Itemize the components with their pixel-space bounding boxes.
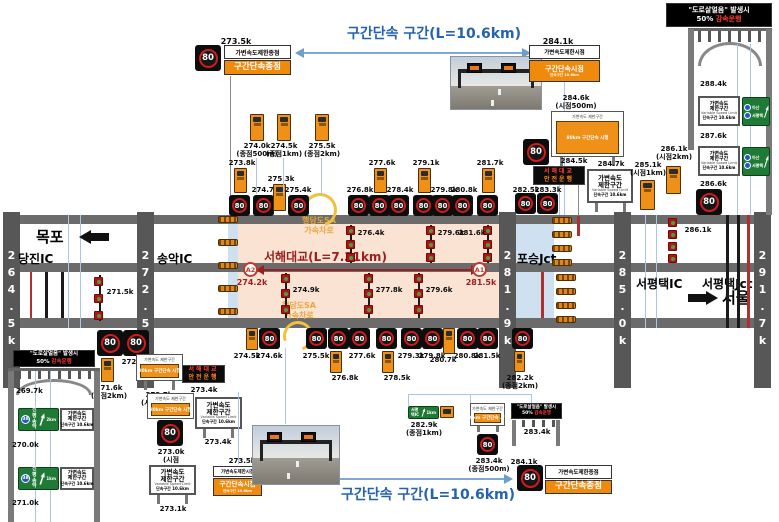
ice-percent: 50% [36,359,49,365]
leader-line [645,215,646,328]
vsl-combo-body: 80km 구간단속 시행 [474,413,501,423]
km-label: 273.4k [196,438,240,446]
bridge-span-line [259,269,474,271]
section-line-top [298,52,524,54]
gantry-icon [552,245,572,252]
section-start-plate: 구간단속시점 단속구간 10.6km [529,60,600,82]
road-marker-red [577,216,580,236]
exit-name2: 서평택 [752,163,763,169]
km-label: 287.6k [700,132,740,140]
vsl-combo-header: 가변속도 제한구간 [472,406,503,412]
speed-sign-80: 80 [369,195,390,216]
gantry-icon [218,239,238,246]
km-label: 271.6k (시점2km) [85,384,133,401]
vsl-sign: 가변속도 제한구간 Variable Speed Limit 단속구간 10.6… [698,96,740,126]
vsl-combo-header: 가변속도 제한구간 [144,357,175,363]
km-label: 284.7k [593,160,629,168]
sign-leg [172,381,175,390]
vsl-sign: 가변속도 제한구간 Variable Speed Limit 단속구간 10.6… [698,146,740,176]
leader-line [750,44,751,215]
speed-sign-80: 80 [477,195,498,216]
speed-sign-80: 80 [253,195,274,216]
speed-sign-80: 80 [537,193,558,214]
speed-sign-80: 80 [195,45,221,71]
ice-slow-text: 감속운행 [716,15,742,23]
section-end-text: 구간단속종점 [555,482,602,492]
led-line1: 서해대교 [188,366,218,374]
ice-line2: 50% 감속운행 [36,359,71,366]
road-marker-black [726,215,729,328]
speed-sign-80: 80 [288,195,309,216]
section-end-plate: 구간단속종점 [545,480,612,494]
camera-marker [346,226,355,235]
speed-sign-80: 80 [123,330,149,356]
km-label: 276.8k [342,186,378,194]
section-length-top: 구간단속 구간(L=10.6km) [347,23,521,43]
vms-led-sign: 서해대교 안전운행 [182,365,225,383]
km-label: 283.4k [520,428,554,436]
km-label: 273.1k [155,505,191,513]
camera-marker [414,305,423,314]
speed-sign-80: 80 [477,328,498,349]
leader-line [238,392,239,464]
leader-line [656,215,657,328]
camera-marker [426,240,435,249]
poseung-jct-label: 포승Jct [517,250,556,267]
camera-marker [668,242,677,251]
sign-leg [623,203,626,212]
enforcement-camera-photo-bottom [252,425,340,485]
exit-name1: 아산 [752,105,759,111]
exit-guide-sign: 아산 서평택 [742,147,770,176]
vsl-combo-sign: 가변속도 제한구간 80km 구간단속 시행 [147,393,194,419]
camera-marker [426,226,435,235]
gantry-icon [552,259,572,266]
exit-name2: 서평택 [752,113,763,119]
arrow-left-mokpo [72,230,109,244]
km-label: 275.4k [280,186,316,194]
km-post-285-0: 285.0k [614,212,631,388]
km-label: 284.5k [556,157,592,165]
speed-sign-80: 80 [477,434,498,455]
enforcement-diagram: 264.5k 272.5k 281.9k 285.0k 291.7k 목포 당진… [0,0,779,522]
vms-orange-sign [443,328,455,354]
leader-line [68,215,69,328]
km-label: 271.5k [104,288,136,296]
km-label: 279.1k [406,159,446,167]
vsl-start-plate: 가변속도제한시점 [529,45,600,59]
ice-line1: "도로살얼음" 발생시 [688,6,749,15]
vms-orange-sign [315,114,329,141]
vsl-combo-sign: 가변속도 제한구간 80km 구간단속 시행 [470,403,505,426]
vms-orange-sign [234,168,247,193]
camera-marker [483,240,492,249]
gantry-icon [218,308,238,315]
arrow-right-seoul [688,291,725,305]
camera-point-a1: A1 [472,262,487,277]
vms-orange-sign [666,166,681,194]
seohae-bridge-title: 서해대교(L=7.31km) [264,248,387,265]
sign-leg [157,495,160,504]
camera-marker [668,230,677,239]
led-line2: 안전운행 [188,374,218,382]
vsl-combo-header: 가변속도 제한구간 [572,114,603,120]
vsl-combo-body: 80km 구간단속 시행 [151,403,190,416]
gantry-icon [556,274,576,281]
camera-marker [94,277,103,286]
exit-arrow-icon [38,472,46,486]
leader-line [256,158,257,194]
ramp-guide-sign: 38 신평 송악 2km [18,408,59,431]
km-label: 281.6k [458,229,486,237]
speed-sign-80: 80 [457,328,478,349]
speed-sign-80: 80 [515,193,536,214]
sign-leg [496,426,499,432]
section-start-subtext: 단속구간 10.6km [550,73,579,77]
speed-sign-80: 80 [517,465,543,491]
vsl-sign: 가변속도 제한구간 Variable Speed Limit 단속구간 10.6… [195,397,242,429]
vms-orange-sign [246,328,258,350]
exit-name: 서평택IC [411,408,420,417]
camera-marker [346,240,355,249]
a1-km-label: 281.5k [464,278,498,288]
ice-slow-text: 감속운행 [534,411,551,416]
camera-marker [668,218,677,227]
speed-sign-80: 80 [388,195,409,216]
km-label: 279.6k [424,286,454,294]
km-label: 282.9k (종점1km) [399,421,449,438]
vsl-detail: 단속구간 10.6km [156,487,189,491]
gantry-icon [556,302,576,309]
road-marker-black [45,272,48,318]
camera-marker [668,254,677,263]
km-label: 276.4k [356,229,386,237]
vsl-end-plate: 가변속도제한종점 [545,465,612,479]
sign-leg [185,495,188,504]
leader-line [321,158,322,194]
led-line1: 서해대교 [544,168,574,176]
leader-line [408,394,409,406]
section-arrow-left [290,48,304,58]
camera-marker [94,294,103,303]
route-badge: 38 [21,474,30,483]
km-label: 276.8k [327,374,363,382]
speed-sign-80: 80 [401,328,422,349]
speed-sign-80: 80 [523,139,549,165]
speed-sign-80: 80 [422,328,443,349]
camera-point-a2: A2 [243,262,258,277]
vsl-combo-body: 80km 구간단속 시행 [140,364,179,378]
speed-sign-80: 80 [259,328,280,349]
speed-sign-80: 80 [696,189,722,215]
led-line2: 안전운행 [544,176,574,184]
vsl-detail: 단속구간 10.6km [202,420,235,424]
vsl-sign: 가변속도 제한구간 단속구간 10.6km [60,467,94,490]
vms-orange-sign [330,351,342,373]
camera-marker [346,253,355,262]
ramp-destinations: 신평 송악 [32,408,38,431]
sign-leg [203,429,206,438]
ice-warning-sign: "도로살얼음" 발생시 50% 감속운행 [13,350,95,367]
exit-name1: 아산 [752,155,759,161]
seopyeongtaek-ic-label: 서평택IC [636,275,682,292]
vsl-combo-sign: 가변속도 제한구간 80km 구간단속 시행 [551,111,624,157]
vms-led-sign: 서해대교 안전운행 [533,166,585,185]
road-marker-red [541,272,544,318]
vsl-detail: 단속구간 10.6km [61,423,94,427]
road-marker-black [61,272,64,318]
vms-orange-sign [277,114,291,141]
ramp-destinations: 신평 송악 [32,467,38,490]
camera-marker [414,274,423,283]
km-label: 286.1k [682,226,714,234]
km-label: 270.0k [12,441,48,449]
camera-marker [281,305,290,314]
section-end-plate: 구간단속종점 [224,60,291,75]
km-label: 282.2k (종점2km) [498,374,542,391]
section-length-bottom: 구간단속 구간(L=10.6km) [341,484,515,504]
speed-sign-80: 80 [512,328,533,349]
gantry-icon [556,316,576,323]
vsl-title: 가변속도 제한구간 [207,402,231,416]
road-marker-red [747,215,750,328]
bridge-arch [698,42,762,66]
km-label: 275.5k (종점2km) [299,142,345,159]
vsl-title: 가변속도 제한구간 [598,175,622,189]
vms-orange-sign [482,168,495,193]
ice-warning-sign: "도로살얼음" 발생시 50% 감속운행 [666,3,772,27]
road-marker-red [30,272,32,318]
km-post-291-7: 291.7k [754,212,771,388]
speed-sign-80: 80 [349,328,370,349]
vms-orange-sign [440,406,454,418]
km-label: 271.0k [12,499,48,507]
km-label: 277.6k [362,159,402,167]
speed-sign-80: 80 [413,195,434,216]
road-rail [512,420,516,446]
speed-sign-80: 80 [348,195,369,216]
camera-marker [281,289,290,298]
km-label: 281.5k [469,352,505,360]
speed-sign-80: 80 [376,328,397,349]
exit-distance: 1km [426,410,436,415]
camera-marker [364,274,373,283]
km-label: 275.5k [298,352,334,360]
bridge-ties [8,371,100,379]
speed-sign-80: 80 [328,328,349,349]
section-start-subtext: 단속구간 10.6km [223,489,252,493]
ice-percent: 50% [697,15,714,23]
km-label: 284.6k (시점500m) [548,94,604,111]
km-label: 283.4k (종점500m) [467,457,511,474]
a2-km-label: 274.2k [235,278,269,288]
camera-marker [364,305,373,314]
dangjin-ic-label: 당진IC [18,250,53,267]
camera-marker [94,311,103,320]
exit-arrow-icon [420,408,425,417]
route-badge: 38 [21,415,30,424]
ice-percent: 50% [522,411,533,416]
camera-marker [364,289,373,298]
gantry-icon [552,231,572,238]
bridge-ties [688,31,772,42]
vsl-end-plate: 가변속도제한종점 [224,45,291,59]
section-arrow-right [504,474,518,484]
vms-orange-sign [514,351,525,372]
bridge-ties [512,420,560,427]
speed-sign-80: 80 [97,330,123,356]
section-start-text: 구간단속시점 [545,65,584,73]
vms-orange-sign [101,358,114,382]
km-label: 280.8k [446,186,482,194]
exit-guide-sign-small: 서평택IC 1km [408,406,439,419]
road-rail [556,420,560,446]
speed-sign-80: 80 [306,328,327,349]
sign-leg [595,203,598,212]
ice-line2: 50% 감속운행 [697,15,742,24]
km-label: 286.6k [700,180,740,188]
km-label: 274.6k [251,352,287,360]
exit-arrow-icon [38,413,46,427]
section-end-text: 구간단속종점 [234,63,281,73]
km-label: 275.3k [263,175,299,183]
exit-guide-sign: 아산 서평택 [742,97,770,126]
vsl-detail: 단속구간 10.6km [703,166,736,170]
ice-line2: 50% 감속운행 [522,411,551,417]
sign-leg [231,429,234,438]
gantry-icon [218,262,238,269]
km-label: 285.1k (시점1km) [626,161,670,178]
songak-ic-label: 송악IC [157,250,192,267]
vsl-detail: 단속구간 10.6km [594,193,627,197]
section-start-text: 구간단속시점 [220,481,256,488]
leader-line [737,44,738,215]
km-label: 281.7k [470,159,510,167]
km-label: 277.6k [344,352,380,360]
camera-marker [414,289,423,298]
vms-orange-sign [250,114,264,141]
speed-sign-80: 80 [432,195,453,216]
gantry-icon [552,217,572,224]
ramp-guide-sign: 38 신평 송악 1km [18,467,59,490]
vsl-sign: 가변속도 제한구간 단속구간 10.6km [60,408,94,431]
km-label: 278.5k [379,374,415,382]
vsl-combo-body: 80km 구간단속 시행 [556,121,619,154]
exit-arrow-icon [763,105,770,118]
road-rail [688,29,694,150]
vsl-detail: 단속구간 10.6km [61,482,94,486]
sign-leg [144,381,147,390]
exit-arrow-icon [763,155,770,168]
km-label: 269.7k [16,387,52,395]
ramp-distance: 1km [46,476,56,481]
gantry-icon [218,285,238,292]
vms-orange-sign [640,180,655,210]
camera-marker [483,253,492,262]
vsl-detail: 단속구간 10.6km [703,116,736,120]
camera-marker [426,253,435,262]
destination-mokpo: 목포 [36,226,64,247]
leader-line [230,76,231,212]
camera-marker [281,274,290,283]
sign-leg [477,426,480,432]
speed-sign-80: 80 [452,195,473,216]
km-label: 278.4k [382,186,418,194]
speed-sign-80: 80 [229,195,250,216]
road-rail [94,371,100,522]
ice-slow-text: 감속운행 [51,359,71,365]
vsl-sign: 가변속도 제한구간 Variable Speed Limit 단속구간 10.6… [149,465,196,495]
ice-warning-sign: "도로살얼음" 발생시 50% 감속운행 [511,403,562,419]
vsl-combo-header: 가변속도 제한구간 [155,396,186,402]
gantry-icon [218,216,238,223]
gantry-icon [556,288,576,295]
leader-line [283,158,284,194]
ramp-distance: 2km [46,417,56,422]
speed-sign-80: 80 [157,420,183,446]
vsl-title: 가변속도 제한구간 [161,469,185,483]
ice-line1: "도로살얼음" 발생시 [30,351,78,358]
km-label: 274.9k [291,286,321,294]
road-marker-black [737,215,740,328]
km-label: 277.8k [374,286,404,294]
vsl-combo-sign: 가변속도 제한구간 80km 구간단속 시행 [136,354,183,381]
km-label: 288.4k [700,80,740,88]
